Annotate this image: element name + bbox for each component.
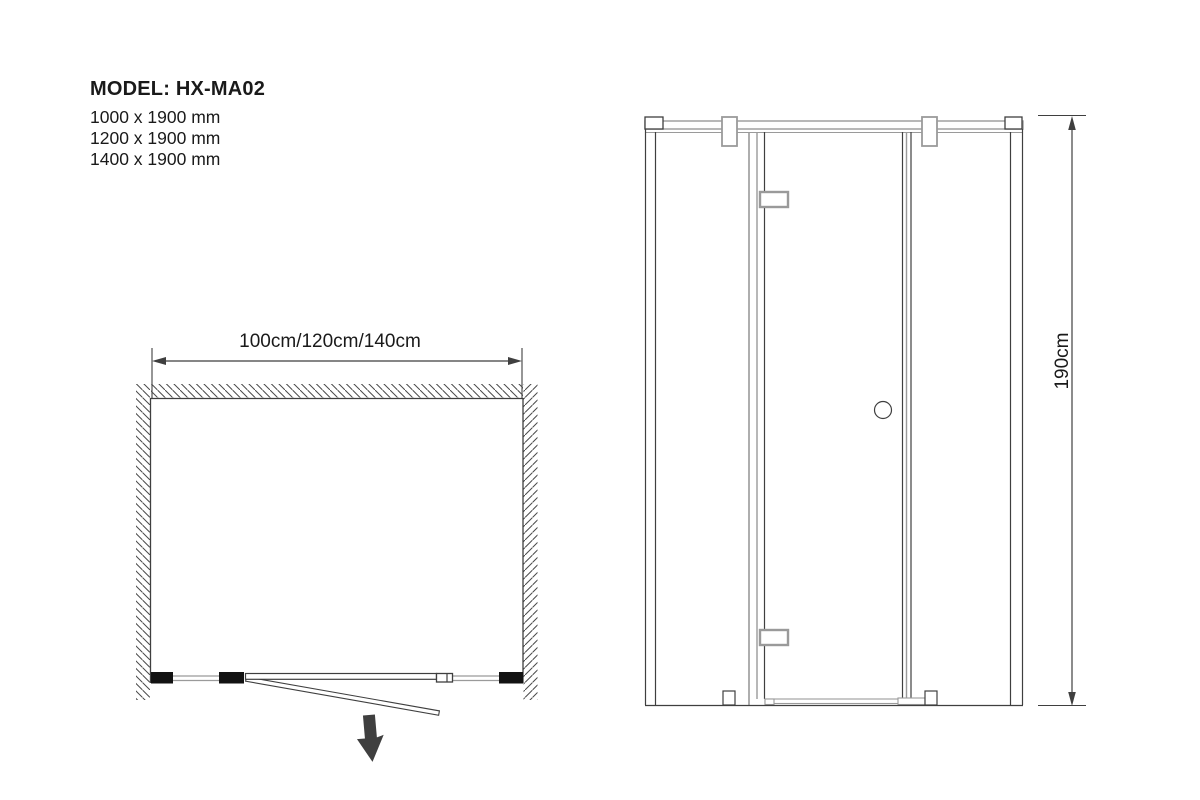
height-dimension-line [1038, 116, 1086, 707]
bar-clamp-left [722, 117, 737, 146]
technical-drawing [0, 0, 1200, 800]
wall-profile-right [499, 672, 523, 684]
door-knob [875, 402, 892, 419]
bar-wall-mount-right [1005, 117, 1022, 129]
dim-arrow-bottom [1068, 692, 1076, 706]
door-open-leaf [246, 677, 440, 715]
wall-profile-left [151, 672, 173, 684]
floor-bracket-left [723, 691, 735, 705]
dim-arrow-left [152, 357, 166, 365]
bottom-rail-cap-right [898, 698, 925, 705]
dim-arrow-top [1068, 116, 1076, 130]
support-bar [645, 121, 1023, 129]
bottom-rail-cap-left [765, 699, 774, 705]
bar-wall-mount-left [645, 117, 663, 129]
wall-hatch-right [524, 384, 538, 700]
wall-hatch-top [151, 384, 523, 398]
plan-view [136, 348, 538, 763]
door-closed-leaf [246, 674, 437, 680]
door-swing-arrow-icon [355, 714, 386, 763]
drawing-canvas: MODEL: HX-MA02 1000 x 1900 mm 1200 x 190… [0, 0, 1200, 800]
pivot-profile [219, 672, 244, 684]
dim-arrow-right [508, 357, 522, 365]
wall-hatch-left [136, 384, 150, 700]
door-handle-plan [437, 674, 453, 683]
hinge-top [760, 192, 788, 207]
floor-bracket-right [925, 691, 937, 705]
elevation-view [645, 116, 1086, 707]
bar-clamp-right [922, 117, 937, 146]
hinge-bottom [760, 630, 788, 645]
